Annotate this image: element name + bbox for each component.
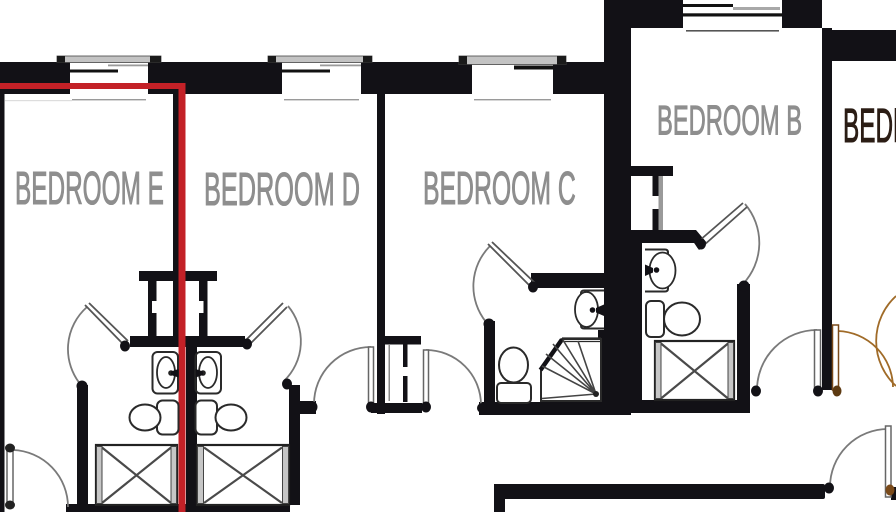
svg-text:BEDROOM D: BEDROOM D [204, 163, 360, 215]
svg-text:BEDROOM C: BEDROOM C [423, 162, 576, 214]
svg-text:BEDROOM B: BEDROOM B [657, 98, 802, 145]
svg-text:BEDROOM E: BEDROOM E [15, 161, 164, 214]
svg-text:BEDROOM A: BEDROOM A [843, 99, 896, 153]
